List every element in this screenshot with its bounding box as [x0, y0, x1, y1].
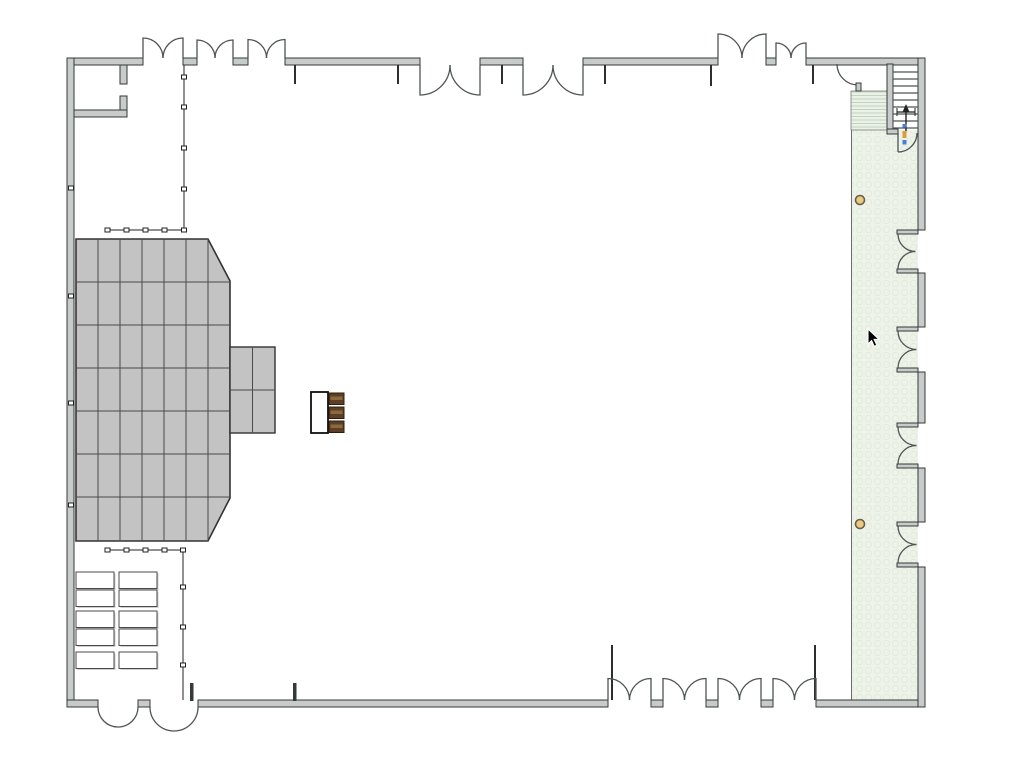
- table-row: [119, 590, 157, 607]
- storage-room-walls: [74, 65, 127, 117]
- east-corridor: [851, 91, 918, 700]
- floor-plan-drawing: [0, 0, 1024, 761]
- chairs: [329, 393, 344, 433]
- table-row: [119, 572, 157, 589]
- table-row: [119, 629, 157, 646]
- wall-stubs: [295, 65, 815, 700]
- banquet-tables[interactable]: [76, 572, 159, 670]
- head-table: [311, 392, 328, 433]
- floor-plan-canvas[interactable]: [0, 0, 1024, 761]
- table-row: [76, 572, 114, 589]
- pipe-and-drape-north[interactable]: [105, 65, 187, 232]
- stage-platform[interactable]: [76, 239, 230, 541]
- table-row: [76, 590, 114, 607]
- stage-extension[interactable]: [230, 347, 275, 433]
- table-row: [76, 652, 114, 669]
- exit-markers: [903, 124, 907, 145]
- post: [856, 196, 865, 205]
- table-row: [119, 611, 157, 628]
- table-row: [76, 611, 114, 628]
- head-table-group[interactable]: [311, 392, 344, 433]
- table-row: [119, 652, 157, 669]
- stair-landing-hatch: [851, 91, 887, 130]
- vestibule-door-leaf: [856, 83, 861, 91]
- bottom-wall-piers: [190, 683, 297, 701]
- table-row: [76, 629, 114, 646]
- post: [856, 520, 865, 529]
